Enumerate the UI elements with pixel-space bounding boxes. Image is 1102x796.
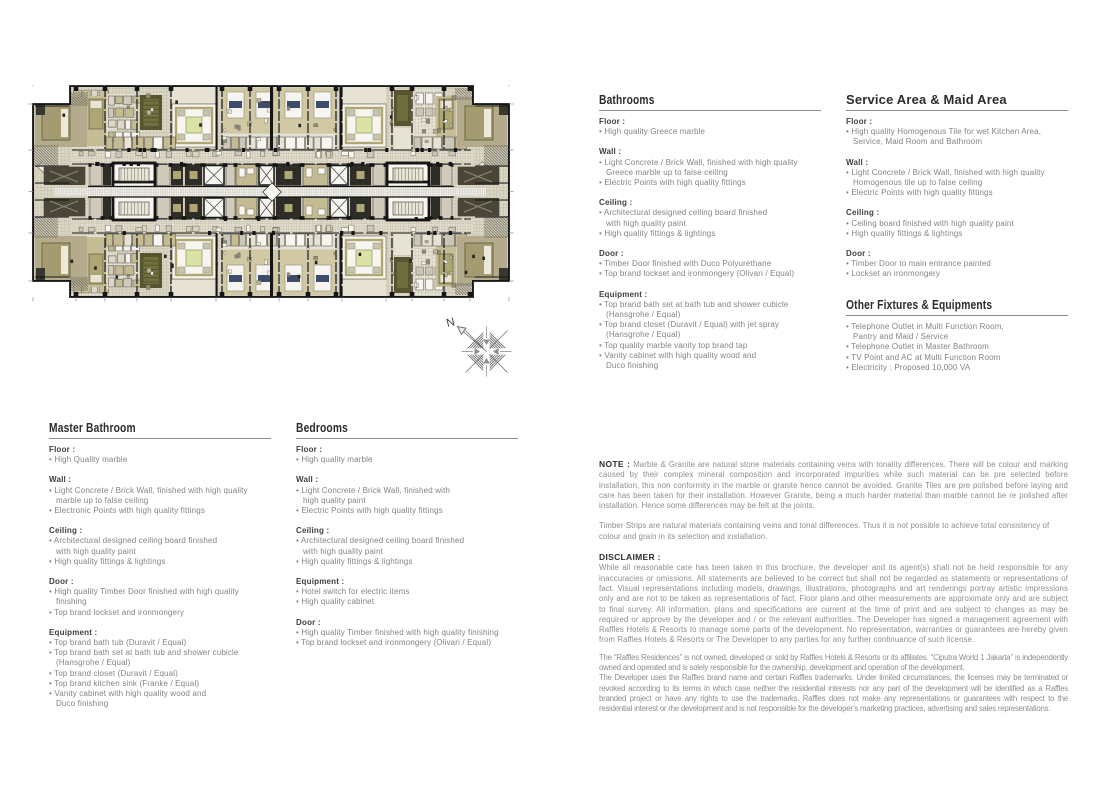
svg-text:N: N [445,316,456,330]
